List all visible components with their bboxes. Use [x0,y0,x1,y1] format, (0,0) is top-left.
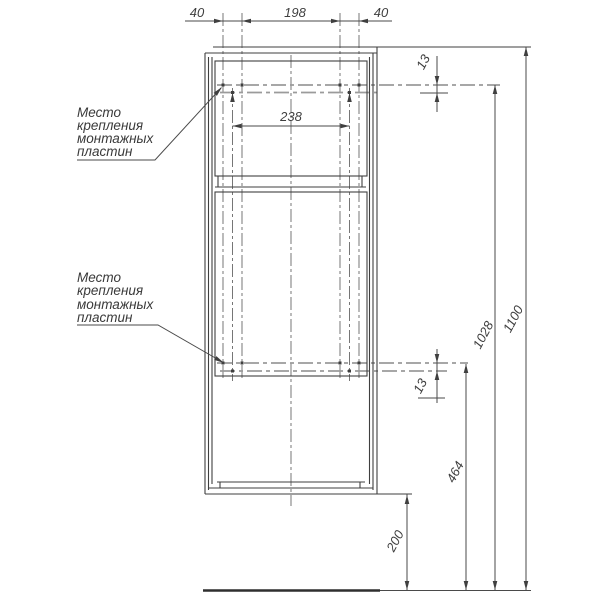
mounting-point [339,362,342,365]
leader-bottom [77,325,223,363]
arrowhead [347,93,352,102]
arrowhead [435,354,440,363]
dimension-lines [185,21,526,590]
arrowhead [464,364,469,373]
arrowhead [331,19,340,24]
mounting-point [348,91,351,94]
dim-label-200: 200 [383,527,407,555]
mounting-plate-lines [217,85,500,371]
mounting-point [241,362,244,365]
mounting-point [358,362,361,365]
mounting-point [231,370,234,373]
mounting-point [339,84,342,87]
cabinet-outline [205,47,531,494]
arrowhead [435,93,440,102]
mounting-point [222,84,225,87]
dim-label-198: 198 [284,5,306,20]
dim-label-238: 238 [279,109,302,124]
arrowhead [359,19,368,24]
mounting-point [222,362,225,365]
arrowhead [524,581,529,590]
dim-label-40-left: 40 [190,5,205,20]
technical-drawing: 40 198 40 238 13 13 1100 1028 464 200 Ме… [0,0,600,600]
dim-label-1100: 1100 [500,302,527,334]
arrowhead [242,19,251,24]
arrowhead [341,124,350,129]
arrowhead [493,581,498,590]
arrowhead [464,581,469,590]
arrowhead [435,76,440,85]
note-mounting-top: Место крепления монтажных пластин [77,105,154,159]
arrowhead [524,47,529,56]
note-line: пластин [77,310,133,325]
mounting-point [348,370,351,373]
hole-centerlines [223,13,359,506]
arrowhead [405,581,410,590]
note-mounting-bottom: Место крепления монтажных пластин [77,270,154,325]
mounting-point [358,84,361,87]
dim-label-1028: 1028 [470,318,497,351]
mounting-point [231,91,234,94]
dim-label-464: 464 [443,459,466,485]
arrowhead [493,85,498,94]
arrowhead [405,495,410,504]
arrowhead [233,124,242,129]
dim-label-13-top: 13 [413,51,433,71]
mounting-point [241,84,244,87]
dimension-labels: 40 198 40 238 13 13 1100 1028 464 200 [190,5,527,555]
dim-label-13-bottom: 13 [410,375,430,395]
arrowheads [214,19,529,590]
note-line: крепления [77,283,143,298]
arrowhead [230,93,235,102]
arrowhead [435,371,440,380]
arrowhead [214,19,223,24]
note-line: пластин [77,144,133,159]
dim-label-40-right: 40 [374,5,389,20]
